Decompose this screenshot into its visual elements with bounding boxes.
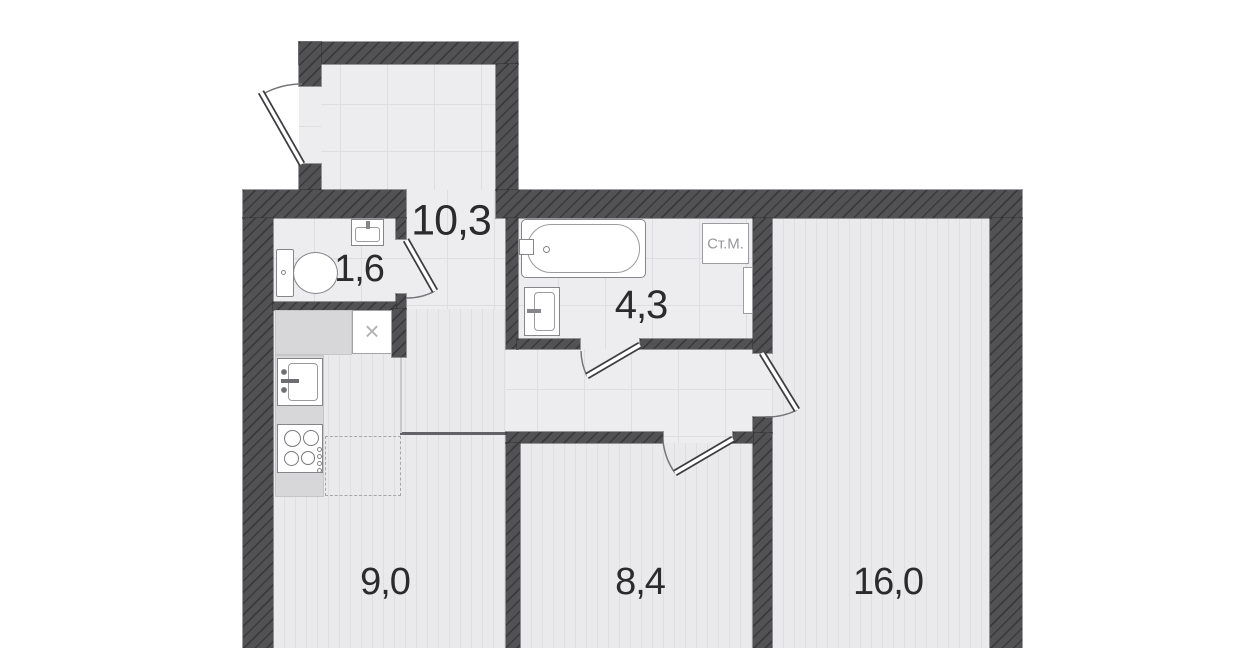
appliance-placeholder-outline: [325, 436, 401, 496]
wall-left-exterior: [243, 218, 273, 648]
hallway-area-label: 10,3: [411, 200, 491, 243]
wall-toilet-bottom: [273, 302, 396, 310]
kitchen-hall-boundary-line-vertical: [400, 357, 402, 433]
towel-radiator-icon: [743, 267, 753, 314]
burner-icon: [284, 451, 299, 466]
wall-bedroom-living-divider: [753, 433, 772, 648]
kitchen-area-label: 9,0: [360, 563, 410, 601]
wall-entry-left-lower-stub: [299, 164, 321, 190]
washing-machine-label: Ст.М.: [707, 235, 744, 252]
burner-icon: [284, 430, 301, 447]
kitchen-faucet-icon: [281, 379, 299, 383]
wall-entry-left-upper-stub: [299, 42, 321, 86]
stove-knob-icon: [317, 447, 322, 452]
living-doorway-floor: [753, 349, 772, 417]
stove-knob-icon: [317, 461, 322, 466]
bathroom-sink: [524, 287, 560, 336]
bathtub: [521, 219, 646, 278]
shaft-label: ×: [364, 316, 379, 347]
bathroom-faucet-icon: [527, 309, 541, 313]
bath-drain: [543, 246, 550, 253]
wall-kitchen-column: [392, 309, 406, 357]
entry-hall-floor: [299, 64, 496, 190]
washing-machine: Ст.М.: [702, 223, 749, 264]
kitchen-sink: [277, 358, 323, 406]
wall-top-right: [496, 190, 1022, 218]
wall-living-door-jamb: [753, 417, 772, 433]
wall-toilet-door-jamb-top: [396, 218, 406, 239]
bathroom-area-label: 4,3: [615, 285, 668, 325]
wall-bedroom-door-jamb: [733, 432, 753, 443]
bedroom-area-label: 8,4: [615, 563, 665, 601]
toilet-sink-faucet-icon: [366, 221, 370, 229]
ventilation-shaft: ×: [352, 310, 392, 354]
floor-plan: × Ст.М. 10,3 1,6: [0, 0, 1241, 648]
burner-icon: [301, 451, 315, 465]
wall-toilet-door-jamb-bottom: [396, 294, 406, 309]
bedroom-floor: [520, 443, 753, 648]
stove-knob-icon: [317, 468, 322, 473]
wall-top-left: [243, 190, 406, 218]
burner-icon: [303, 430, 319, 446]
living-room-area-label: 16,0: [853, 563, 923, 601]
toilet-sink: [351, 219, 384, 246]
kitchen-hall-boundary-line: [400, 432, 519, 435]
wall-bathroom-left: [506, 218, 518, 349]
kitchen-counter-top: [275, 310, 352, 355]
toilet-flush-button: [281, 270, 286, 275]
wall-right-exterior: [990, 218, 1022, 648]
entrance-door: [261, 84, 302, 164]
toilet-area-label: 1,6: [334, 250, 384, 288]
wall-hall-bedroom: [506, 432, 663, 443]
toilet-sink-basin: [355, 227, 380, 242]
stove: [277, 424, 323, 473]
wall-bathroom-bottom-left: [517, 339, 580, 349]
bath-faucet-icon: [519, 239, 534, 255]
entry-doorway-floor: [299, 86, 321, 164]
wall-bathroom-bottom-right: [640, 339, 753, 349]
wall-hall-living-upper: [753, 218, 772, 353]
toilet-bowl-icon: [293, 252, 338, 294]
wall-kitchen-bedroom-divider: [506, 443, 520, 648]
kitchen-faucet-handle-top: [281, 369, 287, 375]
stove-knob-icon: [317, 454, 322, 459]
wall-entry-top: [299, 42, 518, 64]
wall-entry-right: [496, 64, 518, 190]
kitchen-faucet-handle-bottom: [281, 387, 287, 393]
